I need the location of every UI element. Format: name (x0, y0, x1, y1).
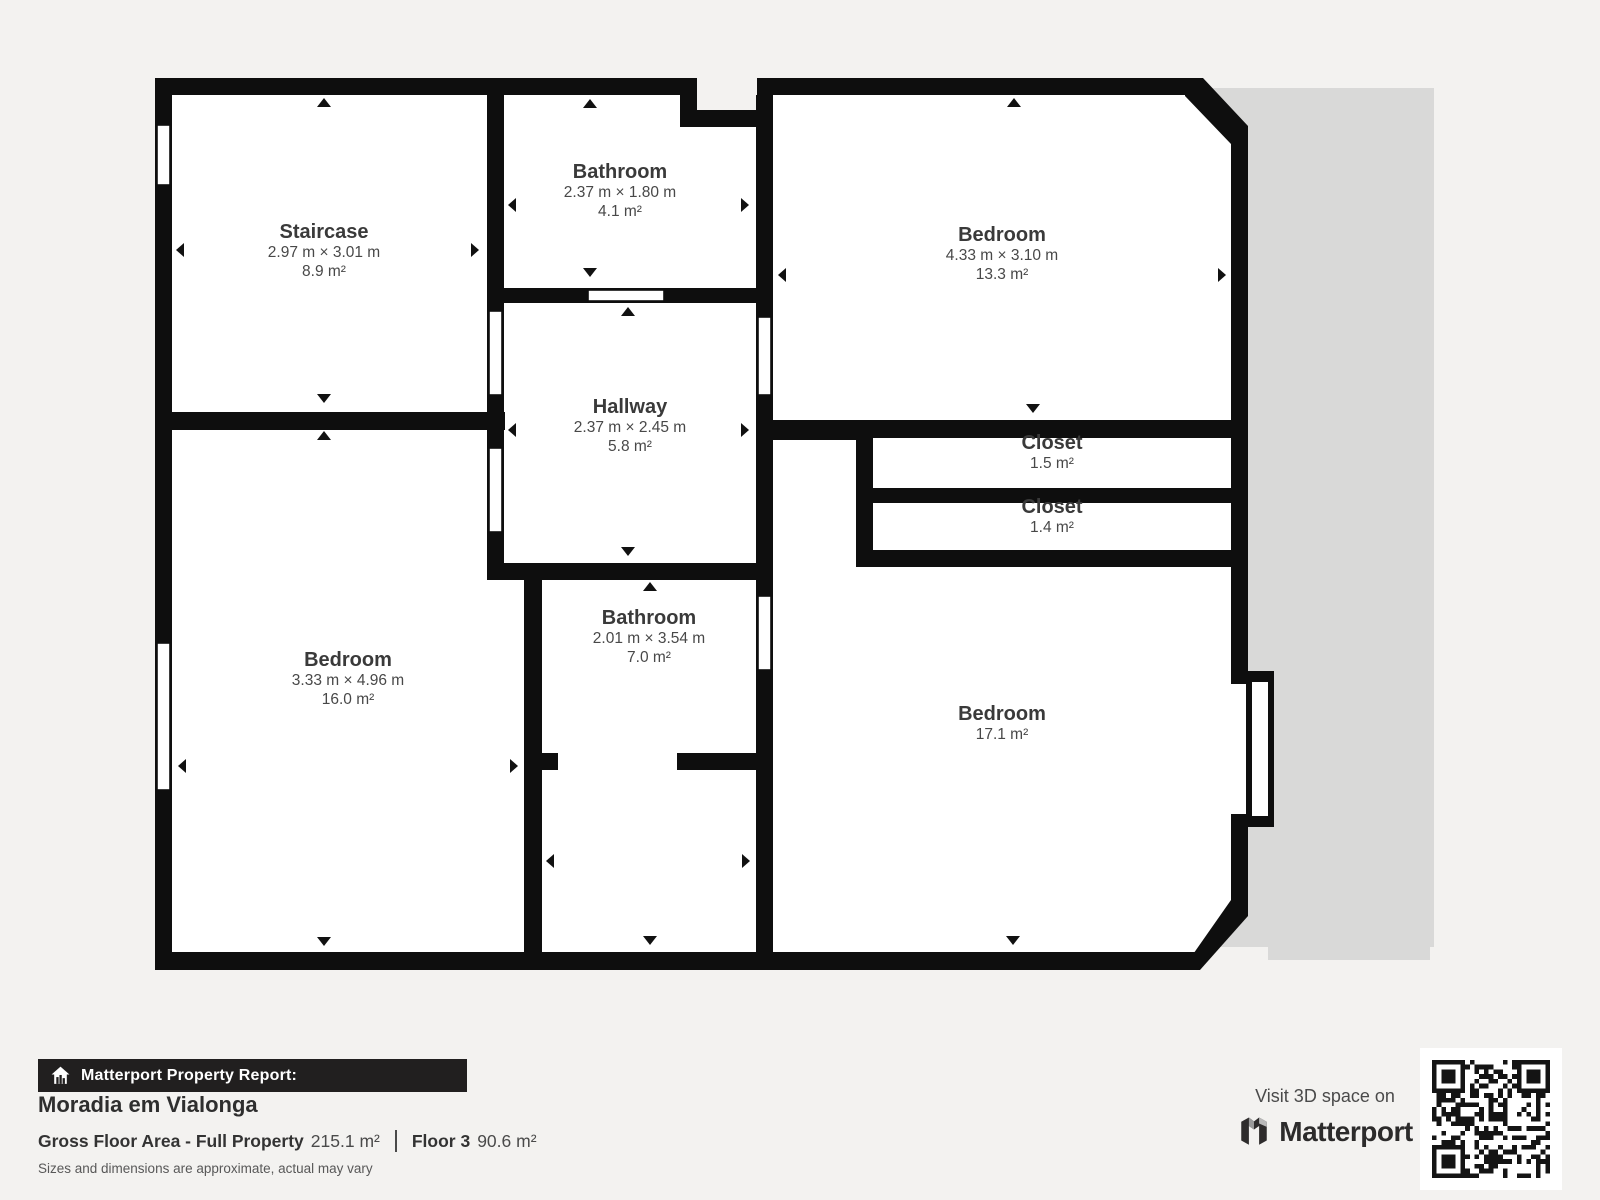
adjacent-area-strip (1268, 947, 1430, 960)
report-header-bar: Matterport Property Report: (38, 1059, 467, 1092)
visit-3d-label: Visit 3D space on (1225, 1086, 1425, 1107)
property-name: Moradia em Vialonga (38, 1092, 258, 1118)
gfa-label: Gross Floor Area - Full Property (38, 1131, 304, 1152)
brand-row: Matterport (1225, 1115, 1425, 1149)
visit-3d-block: Visit 3D space on Matterport (1225, 1086, 1425, 1149)
door-bathroom-bottom (758, 596, 771, 670)
floor-label: Floor 3 (412, 1131, 470, 1152)
door-staircase-hallway (489, 311, 502, 395)
page: { "page": { "background": "#f3f2f0" }, "… (0, 0, 1600, 1200)
report-bar-label: Matterport Property Report: (81, 1067, 297, 1085)
window-staircase (157, 125, 170, 185)
brand-name: Matterport (1279, 1116, 1412, 1148)
floor-plan (0, 0, 1600, 1200)
gfa-value: 215.1 m² (311, 1131, 380, 1152)
qr-code-pattern (1432, 1060, 1550, 1178)
bay-window (1231, 671, 1274, 827)
qr-code (1420, 1048, 1562, 1190)
house-chart-icon (50, 1065, 71, 1086)
divider (395, 1130, 397, 1152)
building-footprint (155, 78, 1248, 970)
door-bedroom-top-right (758, 317, 771, 395)
floor-value: 90.6 m² (477, 1131, 536, 1152)
disclaimer-text: Sizes and dimensions are approximate, ac… (38, 1161, 373, 1176)
floor-area-summary: Gross Floor Area - Full Property 215.1 m… (38, 1130, 537, 1152)
door-bathroom-top (588, 290, 664, 301)
window-bedroom-left (157, 643, 170, 790)
matterport-logo-icon (1237, 1115, 1271, 1149)
door-bedroom-left (489, 448, 502, 532)
